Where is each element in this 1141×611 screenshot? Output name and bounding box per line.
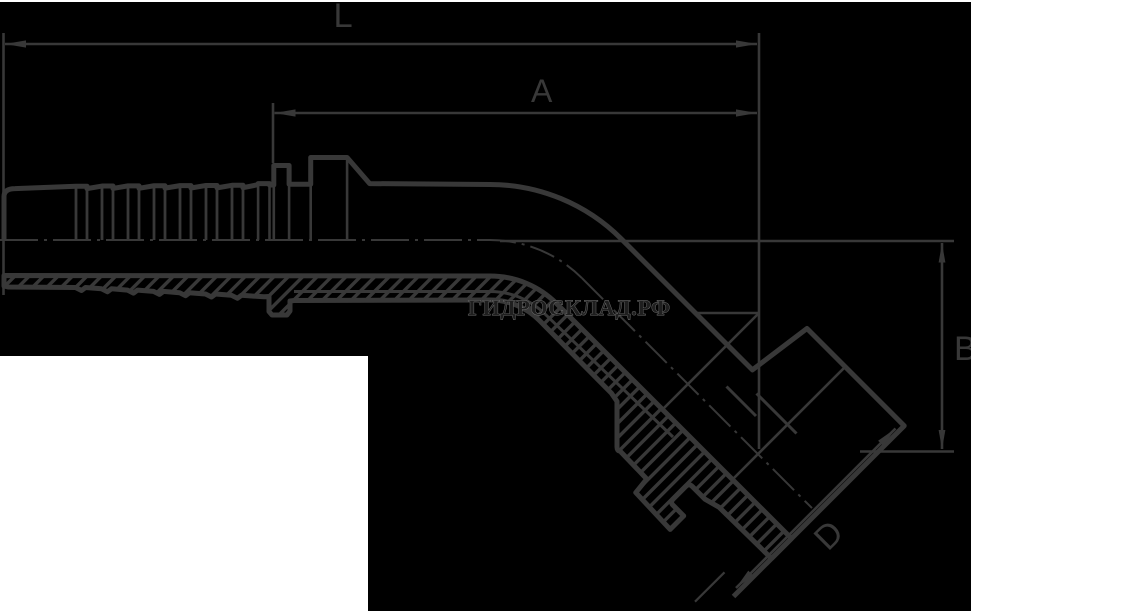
svg-text:A: A <box>531 73 553 109</box>
svg-text:ГИДРОСКЛАД.РФ: ГИДРОСКЛАД.РФ <box>468 295 671 320</box>
svg-text:L: L <box>334 0 353 35</box>
